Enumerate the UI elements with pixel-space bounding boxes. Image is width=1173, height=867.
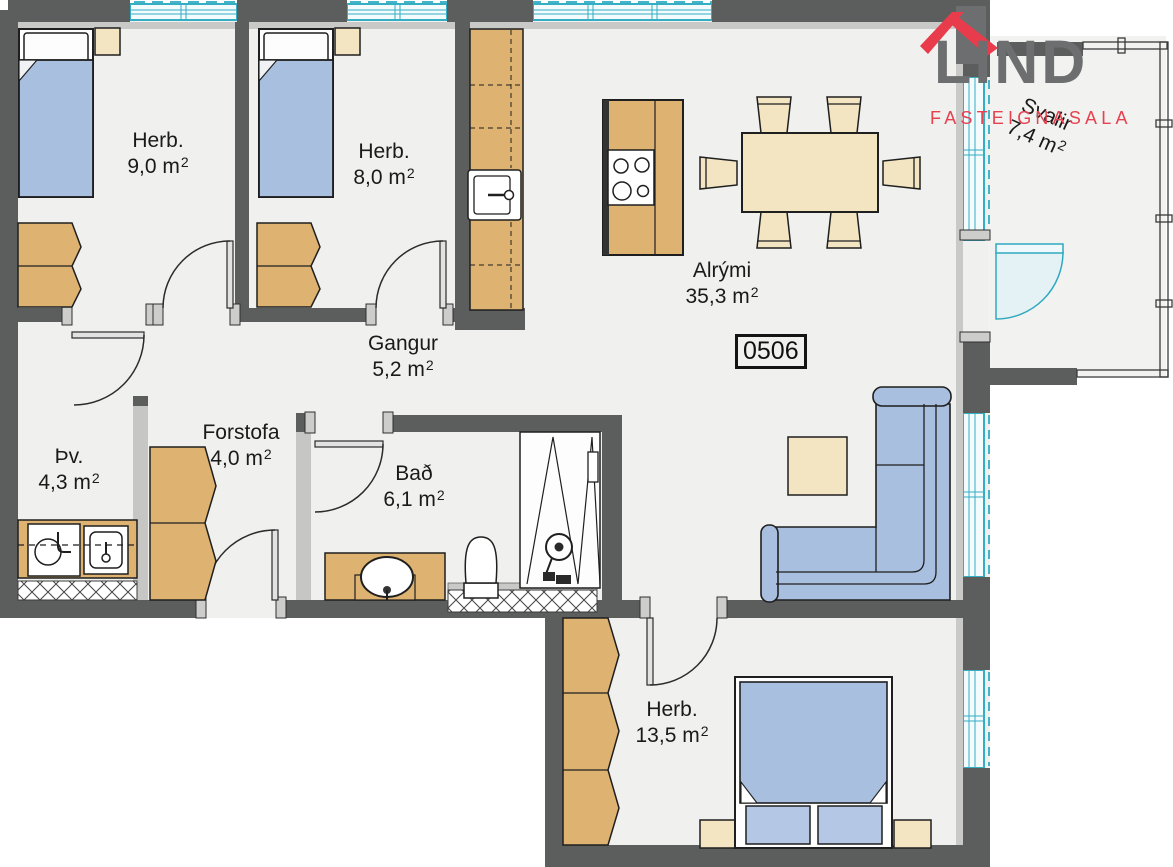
wardrobe-icon [18,223,81,307]
wall-segment [717,600,963,618]
wall-segment [235,22,249,310]
room-name: Gangur [368,333,438,356]
wall-segment [455,22,470,310]
nightstand-icon [894,820,931,848]
wardrobe-icon [563,618,619,845]
room-area: 5,2 m2 [368,356,438,382]
kitchen-sink-icon [468,170,521,220]
window-right-a [963,77,984,240]
room-label-bad: Bað 6,1 m2 [383,463,444,512]
room-label-alrymi: Alrými 35,3 m2 [686,260,759,309]
blanket-icon [259,60,333,197]
wall-segment [8,0,130,22]
wall-segment [447,0,533,22]
laundry-room [18,520,137,578]
nightstand-icon [335,28,360,55]
wall-segment [383,415,610,432]
room-name: Þv. [38,446,99,469]
room-area: 4,0 m2 [202,445,279,471]
pillow-icon [818,806,882,844]
room-label-tv: Þv. 4,3 m2 [38,446,99,495]
wall-segment [0,600,200,618]
wall-segment [602,415,622,600]
room-name: Bað [383,463,444,486]
room-area: 13,5 m2 [636,722,709,748]
window-top-3 [533,4,712,20]
room-name: Herb. [636,699,709,722]
coffee-table-icon [788,437,847,495]
room-area: 4,3 m2 [38,469,99,495]
room-label-forstofa: Forstofa 4,0 m2 [202,422,279,471]
window-right-c [963,670,984,768]
room-label-herb3: Herb. 13,5 m2 [636,699,709,748]
wall-cap [133,396,148,406]
toilet-icon [464,537,498,598]
nightstand-icon [95,28,120,55]
room-area: 8,0 m2 [353,164,414,190]
balcony-wall [982,368,1077,385]
logo-subtitle-text: FASTEIGNASALA [930,108,1132,129]
room-label-herb2: Herb. 8,0 m2 [353,141,414,190]
wall-segment [237,0,347,22]
logo-brand-text: LIND [934,32,1088,93]
laundry-sink-icon [84,526,128,574]
wall-segment [455,308,525,330]
wall-segment [230,308,376,322]
floorplan-canvas: Herb. 9,0 m2 Herb. 8,0 m2 Gangur 5,2 m2 … [0,0,1173,867]
window-right-b [963,413,984,577]
washing-machine-icon [28,524,80,576]
wall-segment [545,618,563,867]
wall-sill [8,22,963,29]
blanket-icon [19,60,93,197]
wall-partition [296,413,311,618]
wall-sill [956,618,963,845]
wall-segment [963,577,990,670]
nightstand-icon [700,820,737,848]
room-name: Herb. [353,141,414,164]
room-name: Herb. [127,130,188,153]
pillow-icon [746,806,810,844]
dining-table-icon [742,133,878,212]
room-area: 6,1 m2 [383,486,444,512]
window-top-2 [347,4,447,20]
wardrobe-icon [257,223,320,307]
double-bed-icon [735,677,892,848]
wall-segment [963,768,990,860]
room-name: Alrými [686,260,759,283]
room-area: 9,0 m2 [127,153,188,179]
room-label-gangur: Gangur 5,2 m2 [368,333,438,382]
room-area: 35,3 m2 [686,283,759,309]
shower-icon [520,432,600,588]
room-label-herb1: Herb. 9,0 m2 [127,130,188,179]
room-name: Forstofa [202,422,279,445]
unit-number: 0506 [735,334,807,369]
stove-icon [608,150,654,205]
window-top-1 [130,4,237,20]
